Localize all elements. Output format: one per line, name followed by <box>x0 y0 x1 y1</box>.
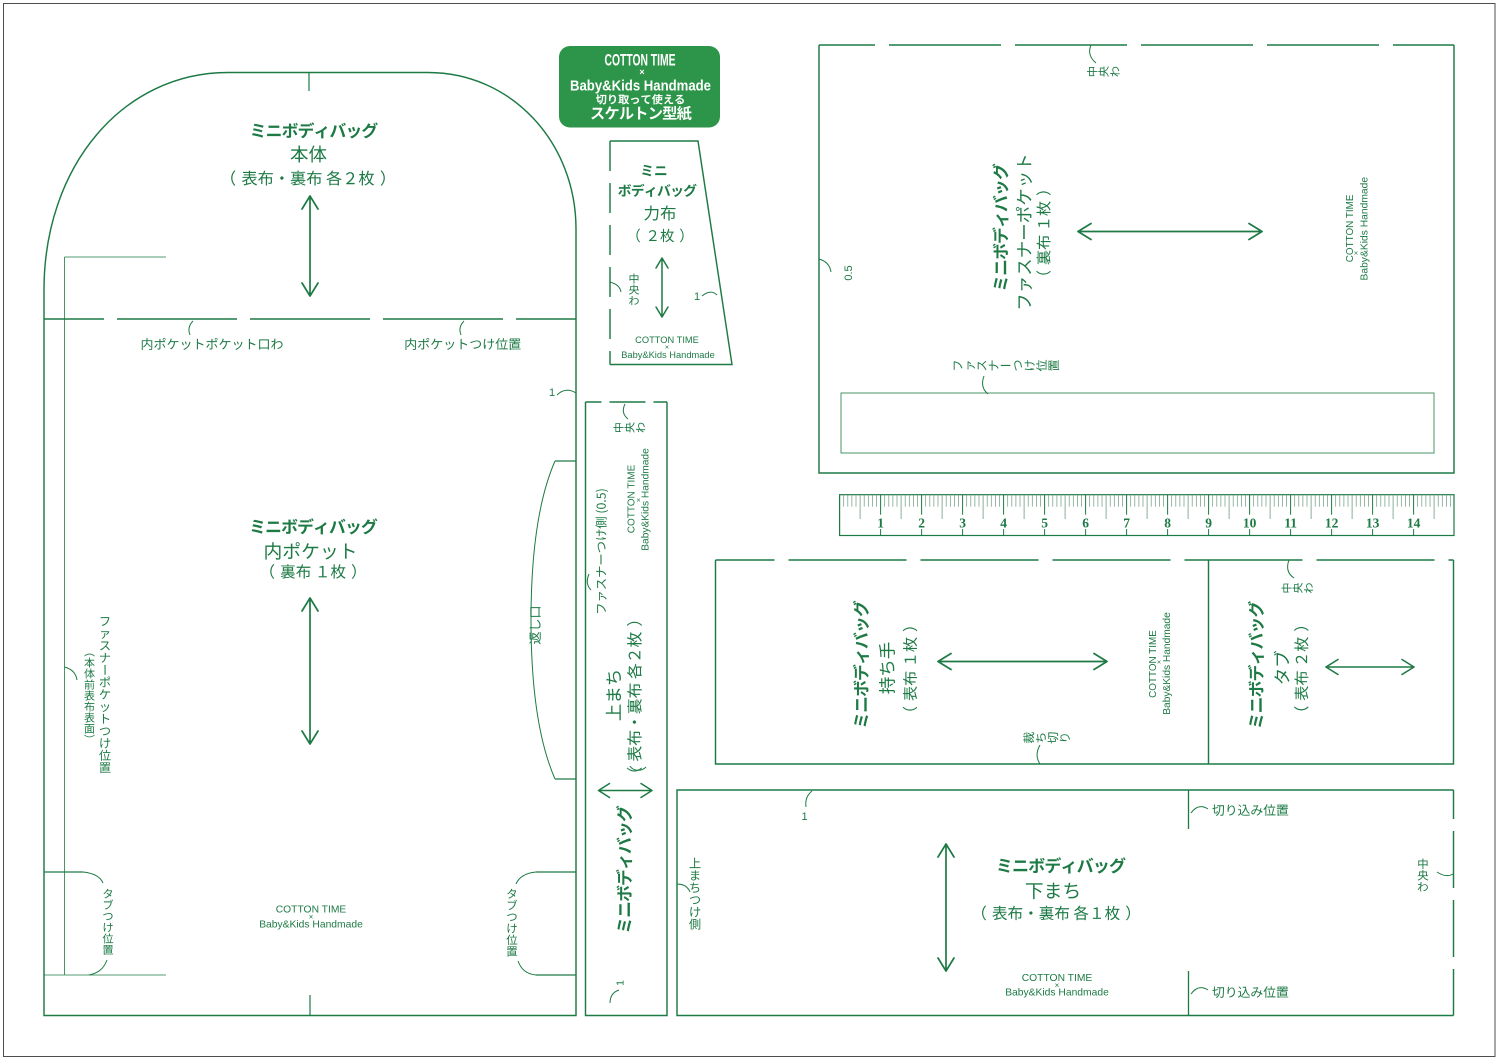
svg-text:10: 10 <box>1243 516 1257 531</box>
svg-text:5: 5 <box>1041 516 1048 531</box>
svg-text:1: 1 <box>801 811 807 823</box>
svg-text:Baby&Kids Handmade: Baby&Kids Handmade <box>570 78 711 95</box>
svg-text:13: 13 <box>1366 516 1380 531</box>
svg-text:×: × <box>639 67 644 77</box>
svg-text:4: 4 <box>1000 516 1007 531</box>
svg-text:6: 6 <box>1082 516 1089 531</box>
svg-text:1: 1 <box>877 516 884 531</box>
svg-text:Baby&Kids Handmade: Baby&Kids Handmade <box>1005 988 1109 999</box>
svg-text:Baby&Kids Handmade: Baby&Kids Handmade <box>1360 177 1371 281</box>
svg-text:1: 1 <box>549 387 555 399</box>
svg-text:11: 11 <box>1284 516 1297 531</box>
svg-text:3: 3 <box>959 516 966 531</box>
svg-text:8: 8 <box>1164 516 1171 531</box>
svg-text:0.5: 0.5 <box>843 265 855 280</box>
svg-text:Baby&Kids Handmade: Baby&Kids Handmade <box>259 919 363 930</box>
svg-text:12: 12 <box>1325 516 1339 531</box>
svg-text:7: 7 <box>1123 516 1130 531</box>
svg-text:2: 2 <box>918 516 925 531</box>
svg-text:1: 1 <box>694 291 700 303</box>
svg-text:Baby&Kids Handmade: Baby&Kids Handmade <box>621 350 715 360</box>
svg-text:Baby&Kids Handmade: Baby&Kids Handmade <box>641 448 652 551</box>
svg-text:9: 9 <box>1205 516 1212 531</box>
svg-text:1: 1 <box>615 980 627 986</box>
svg-text:14: 14 <box>1407 516 1421 531</box>
svg-text:Baby&Kids Handmade: Baby&Kids Handmade <box>1162 612 1173 715</box>
